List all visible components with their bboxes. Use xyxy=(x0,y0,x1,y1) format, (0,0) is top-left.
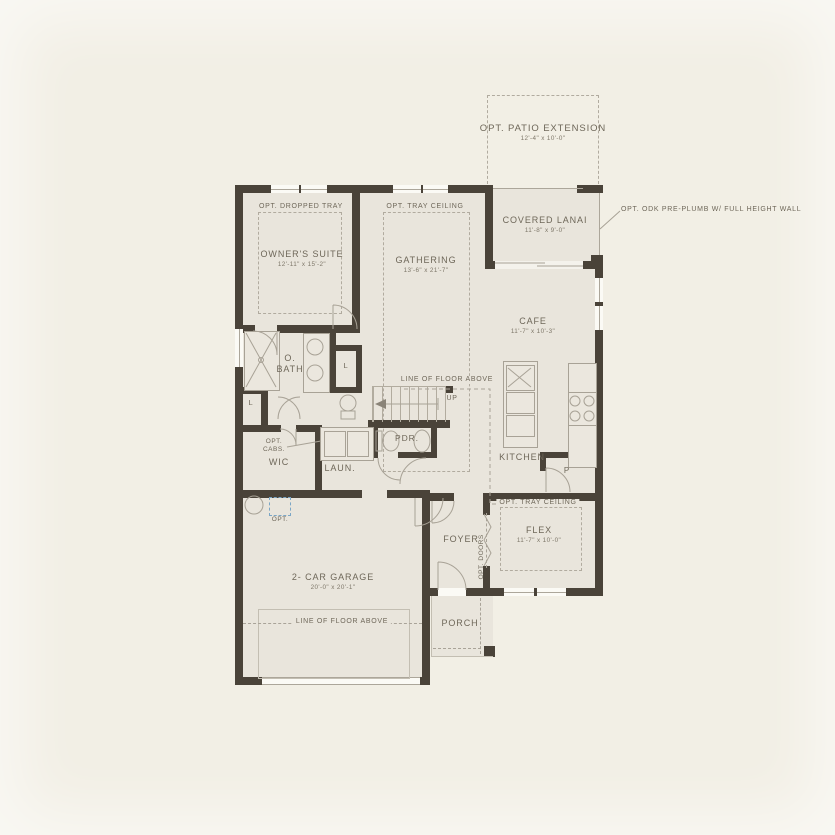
lofa-stairs-text: LINE OF FLOOR ABOVE xyxy=(401,376,493,383)
room-label-owners-suite: OWNER'S SUITE 12'-11" x 15'-2" xyxy=(261,249,344,268)
bath-name: O. BATH xyxy=(277,353,304,374)
linen-closet-bath-label: L xyxy=(343,362,348,371)
powder-name: PDR. xyxy=(395,433,419,443)
wic-name: WIC xyxy=(269,457,289,467)
flex-name: FLEX xyxy=(517,525,561,536)
patio-dims: 12'-4" x 10'-0" xyxy=(480,135,606,142)
up-label: UP xyxy=(446,395,457,403)
room-label-laundry: LAUN. xyxy=(324,463,355,474)
stairs-up-arrow-line xyxy=(384,398,438,410)
kitchen-name: KITCHEN xyxy=(499,452,545,462)
island-sink-x-icon xyxy=(508,368,531,387)
up-text: UP xyxy=(446,395,457,402)
water-heater-icon xyxy=(245,496,263,514)
opt-cabs-text-1: OPT. xyxy=(263,438,285,446)
porch-name: PORCH xyxy=(441,618,478,628)
stairs-up-arrowhead xyxy=(375,399,386,409)
owners-suite-name: OWNER'S SUITE xyxy=(261,249,344,260)
lanai-name: COVERED LANAI xyxy=(503,215,588,226)
range-burner-icon-1 xyxy=(570,396,580,406)
cafe-dims: 11'-7" x 10'-3" xyxy=(511,328,555,335)
room-label-garage: 2- CAR GARAGE 20'-0" x 20'-1" xyxy=(292,572,374,591)
opt-tray-ceiling-gathering-text: OPT. TRAY CEILING xyxy=(386,203,463,210)
odk-callout-leader xyxy=(600,211,620,229)
detail-lines-overlay xyxy=(0,0,835,835)
opt-doors-text: OPT. DOORS xyxy=(478,534,485,579)
garage-name: 2- CAR GARAGE xyxy=(292,572,374,583)
linen-bath-text: L xyxy=(343,361,348,370)
opt-cabs-text-2: CABS. xyxy=(263,446,285,454)
line-of-floor-above-garage-label: LINE OF FLOOR ABOVE xyxy=(293,618,391,626)
room-label-lanai: COVERED LANAI 11'-8" x 9'-0" xyxy=(503,215,588,234)
room-label-wic: WIC xyxy=(269,457,289,468)
linen-closet-hall-label: L xyxy=(248,399,253,408)
owners-suite-dims: 12'-11" x 15'-2" xyxy=(261,261,344,268)
room-label-cafe: CAFE 11'-7" x 10'-3" xyxy=(511,316,555,335)
range-burner-icon-2 xyxy=(584,396,594,406)
door-arc-foyer-closet xyxy=(432,501,454,523)
opt-dropped-tray-label: OPT. DROPPED TRAY xyxy=(256,203,346,211)
linen-hall-text: L xyxy=(248,398,253,407)
room-label-gathering: GATHERING 13'-6" x 21'-7" xyxy=(396,255,457,274)
opt-tray-ceiling-flex-text: OPT. TRAY CEILING xyxy=(499,499,576,506)
pantry-name: P xyxy=(564,466,570,475)
odk-callout-label: OPT. ODK PRE-PLUMB W/ FULL HEIGHT WALL xyxy=(621,206,801,213)
opt-garage-label: OPT. xyxy=(272,516,288,524)
lanai-slider-lines xyxy=(495,263,583,266)
lofa-garage-text: LINE OF FLOOR ABOVE xyxy=(296,618,388,625)
foyer-name: FOYER xyxy=(443,534,479,544)
room-label-bath: O. BATH xyxy=(270,353,310,374)
opt-cabs-label: OPT. CABS. xyxy=(263,438,285,454)
gathering-name: GATHERING xyxy=(396,255,457,266)
bath-toilet-tank-icon xyxy=(341,411,355,419)
garage-dims: 20'-0" x 20'-1" xyxy=(292,584,374,591)
room-label-powder: PDR. xyxy=(395,433,419,443)
flex-dims: 11'-7" x 10'-0" xyxy=(517,537,561,544)
line-of-floor-above-stairs-dash xyxy=(404,389,540,504)
bath-toilet-icon xyxy=(340,395,356,411)
line-of-floor-above-stairs-label: LINE OF FLOOR ABOVE xyxy=(398,376,496,384)
room-label-patio: OPT. PATIO EXTENSION 12'-4" x 10'-0" xyxy=(480,123,606,143)
floor-plan: OPT. PATIO EXTENSION 12'-4" x 10'-0" COV… xyxy=(0,0,835,835)
door-arc-owners-suite xyxy=(333,305,357,329)
odk-callout-text: OPT. ODK PRE-PLUMB W/ FULL HEIGHT WALL xyxy=(621,206,801,214)
door-arc-front-entry xyxy=(438,562,466,590)
gathering-dims: 13'-6" x 21'-7" xyxy=(396,267,457,274)
range-burner-icon-4 xyxy=(584,411,594,421)
opt-dropped-tray-text: OPT. DROPPED TRAY xyxy=(259,203,343,210)
cafe-name: CAFE xyxy=(511,316,555,327)
patio-name: OPT. PATIO EXTENSION xyxy=(480,123,606,134)
room-label-porch: PORCH xyxy=(441,618,478,629)
lanai-dims: 11'-8" x 9'-0" xyxy=(503,227,588,234)
opt-tray-ceiling-flex-label: OPT. TRAY CEILING xyxy=(496,499,579,507)
door-arcs-bath-hall xyxy=(278,397,300,419)
door-arcs-mud-hall xyxy=(378,458,426,484)
opt-garage-text: OPT. xyxy=(272,516,288,523)
room-label-kitchen: KITCHEN xyxy=(499,452,545,463)
laundry-name: LAUN. xyxy=(324,463,355,473)
opt-doors-label: OPT. DOORS xyxy=(478,534,486,579)
range-burner-icon-3 xyxy=(570,411,580,421)
opt-cabs-leader xyxy=(287,441,321,447)
room-label-pantry: P xyxy=(564,466,570,475)
powder-toilet-tank-icon xyxy=(376,431,382,451)
room-label-flex: FLEX 11'-7" x 10'-0" xyxy=(517,525,561,544)
room-label-foyer: FOYER xyxy=(443,534,479,545)
opt-tray-ceiling-gathering-label: OPT. TRAY CEILING xyxy=(383,203,466,211)
